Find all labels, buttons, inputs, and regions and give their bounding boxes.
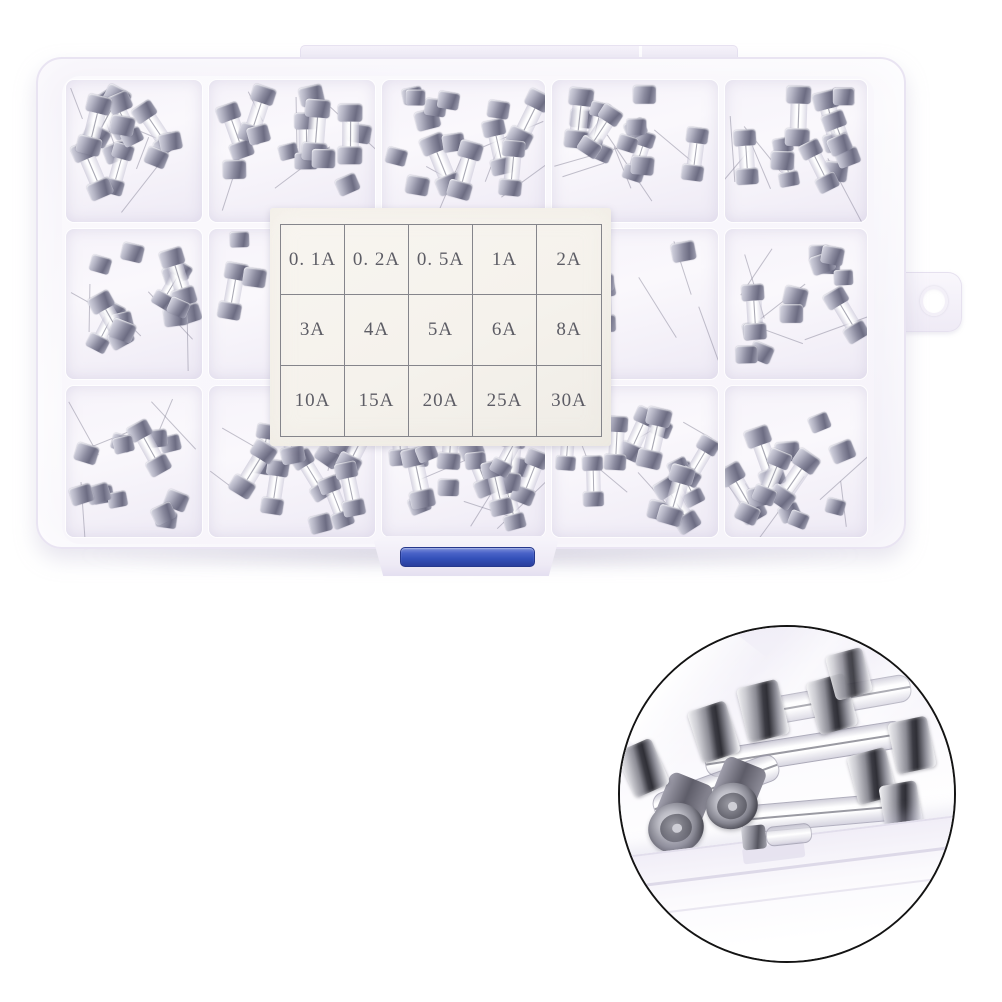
fuse-cap xyxy=(735,345,757,363)
fuse-wire xyxy=(524,108,536,130)
fuse-wire xyxy=(91,113,98,137)
glass-fuse xyxy=(498,139,526,196)
fuse-lead-wire xyxy=(638,277,676,338)
fuse-cap xyxy=(242,266,267,288)
amperage-label-card: 0. 1A0. 2A0. 5A1A2A3A4A5A6A8A10A15A20A25… xyxy=(270,208,611,446)
fuse-cap xyxy=(741,283,765,301)
fuse-wire xyxy=(814,156,825,176)
fuse-wire xyxy=(787,469,802,490)
fuse-cap xyxy=(308,512,334,535)
fuse-glass xyxy=(266,475,284,499)
fuse-cap xyxy=(626,118,646,135)
fuse-cap xyxy=(385,146,409,167)
fuse-wire xyxy=(254,103,262,126)
fuse-glass xyxy=(503,156,520,180)
fuse-wire xyxy=(615,432,617,454)
label-cell: 30A xyxy=(537,366,601,436)
fuse-glass xyxy=(737,146,754,169)
label-grid: 0. 1A0. 2A0. 5A1A2A3A4A5A6A8A10A15A20A25… xyxy=(280,224,602,437)
fuse-wire xyxy=(247,459,261,480)
fuse-wire xyxy=(511,156,514,179)
fuse-cap xyxy=(780,304,803,323)
fuse-wire xyxy=(494,477,500,499)
label-cell: 5A xyxy=(409,295,473,365)
fuse-cap xyxy=(626,118,646,135)
fuse-glass xyxy=(487,476,507,501)
fuse-cap xyxy=(120,242,145,264)
label-cell: 0. 1A xyxy=(281,225,345,295)
fuse-cap xyxy=(405,90,425,106)
label-cell: 0. 5A xyxy=(409,225,473,295)
fuse-glass xyxy=(340,477,359,502)
fuse-cap xyxy=(630,155,655,176)
fuse-storage-box: 0. 1A0. 2A0. 5A1A2A3A4A5A6A8A10A15A20A25… xyxy=(36,57,906,549)
fuse-cap xyxy=(681,164,705,182)
compartment xyxy=(382,80,545,222)
compartment xyxy=(66,80,202,222)
fuse-cap xyxy=(487,99,511,120)
fuse-cap xyxy=(771,150,795,170)
label-cell: 0. 2A xyxy=(345,225,409,295)
label-cell: 25A xyxy=(473,366,537,436)
fuse-cap xyxy=(405,90,425,106)
glass-fuse xyxy=(741,283,767,340)
fuse-cap xyxy=(498,178,522,197)
compartment xyxy=(66,229,202,379)
fuse-cap xyxy=(223,160,247,179)
fuse-wire xyxy=(415,466,421,490)
fuse-cap xyxy=(308,512,334,535)
product-photo: 0. 1A0. 2A0. 5A1A2A3A4A5A6A8A10A15A20A25… xyxy=(0,0,1002,1002)
compartment xyxy=(725,386,867,537)
fuse-cap xyxy=(807,411,832,434)
fuse-cap xyxy=(304,98,330,118)
fuse-cap xyxy=(89,254,113,275)
fuse-glass xyxy=(789,103,807,128)
fuse-cap xyxy=(807,411,832,434)
fuse-wire xyxy=(593,122,606,141)
glass-fuse xyxy=(785,85,812,146)
fuse-cap xyxy=(828,438,857,465)
fuse-cap xyxy=(780,304,803,323)
fuse-wire xyxy=(315,118,318,143)
fuse-cap xyxy=(556,455,577,471)
fuse-glass xyxy=(83,111,105,139)
fuse-cap xyxy=(833,88,854,105)
compartment xyxy=(209,80,375,222)
fuse-glass xyxy=(167,263,190,290)
fuse-cap xyxy=(230,231,250,247)
fuse-cap xyxy=(820,244,845,266)
glass-fuse xyxy=(821,285,867,345)
fuse-wire xyxy=(753,300,755,323)
fuse-lead-wire xyxy=(562,163,604,177)
fuse-wire xyxy=(840,304,853,324)
fuse-cap xyxy=(670,240,697,263)
glass-fuse xyxy=(582,456,604,507)
label-cell: 2A xyxy=(537,225,601,295)
label-cell: 10A xyxy=(281,366,345,436)
fuse-wire xyxy=(578,105,582,130)
fuse-cap xyxy=(502,139,526,158)
glass-fuse xyxy=(681,126,709,182)
fuse-wire xyxy=(526,467,535,488)
glass-fuse xyxy=(733,129,759,185)
fuse-wire xyxy=(651,426,658,450)
fuse-cap xyxy=(487,99,511,120)
fuse-cap xyxy=(334,172,361,197)
fuse-cap xyxy=(833,88,854,105)
fuse-glass xyxy=(306,117,325,143)
fuse-wire xyxy=(116,159,123,180)
fuse-wire xyxy=(592,471,594,492)
fuse-glass xyxy=(342,122,359,147)
fuse-cap xyxy=(583,492,604,508)
fuse-cap xyxy=(223,160,247,179)
fuse-cap xyxy=(735,345,757,363)
fuse-wire xyxy=(87,158,97,180)
label-cell: 4A xyxy=(345,295,409,365)
compartment xyxy=(552,80,718,222)
label-cell: 3A xyxy=(281,295,345,365)
compartment xyxy=(725,80,867,222)
fuse-lead-wire xyxy=(71,87,84,118)
fuse-cap xyxy=(786,85,811,104)
fuse-cap xyxy=(743,322,767,340)
fuse-cap xyxy=(828,438,857,465)
fuse-cap xyxy=(246,123,272,146)
fuse-wire xyxy=(143,437,155,458)
fuse-cap xyxy=(242,266,267,288)
fuse-cap xyxy=(405,174,431,196)
fuse-cap xyxy=(338,147,363,165)
fuse-cap xyxy=(603,453,626,470)
inset-fuse-cap xyxy=(741,824,767,850)
fuse-glass xyxy=(745,300,762,324)
fuse-element-wire xyxy=(741,805,901,821)
fuse-glass xyxy=(407,465,429,493)
fuse-glass xyxy=(686,142,703,165)
fuse-glass xyxy=(454,156,476,183)
fuse-cap xyxy=(112,434,135,455)
fuse-cap xyxy=(311,148,335,167)
fuse-wire xyxy=(745,146,747,168)
box-edge-groove xyxy=(618,868,956,924)
label-cell: 20A xyxy=(409,366,473,436)
fuse-cap xyxy=(436,90,460,111)
fuse-wire xyxy=(436,152,446,175)
fuse-cap xyxy=(735,168,758,186)
fuse-cap xyxy=(437,479,458,496)
fuse-cap xyxy=(217,300,243,321)
fuse-wire xyxy=(274,476,278,498)
fuse-cap xyxy=(158,130,183,152)
fuse-cap xyxy=(385,146,409,167)
label-cell: 15A xyxy=(345,366,409,436)
fuse-cap xyxy=(670,240,697,263)
fuse-glass xyxy=(664,481,687,509)
fuse-wire xyxy=(231,280,236,303)
fuse-cap xyxy=(437,479,458,496)
compartment xyxy=(725,229,867,379)
fuse-glass xyxy=(109,157,129,181)
fuse-cap xyxy=(437,452,461,470)
fuse-cap xyxy=(834,269,854,285)
fuse-wire xyxy=(462,158,469,181)
fuse-wire xyxy=(672,483,680,507)
fuse-cap xyxy=(633,85,656,104)
fuse-cap xyxy=(834,269,854,285)
fuse-cap xyxy=(158,130,183,152)
fuse-cap xyxy=(112,434,135,455)
label-cell: 6A xyxy=(473,295,537,365)
fuse-cap xyxy=(582,456,603,472)
fuse-glass xyxy=(585,471,600,492)
fuse-cap xyxy=(338,104,363,122)
fuse-wire xyxy=(174,265,182,288)
fuse-wire xyxy=(693,452,705,471)
glass-fuse xyxy=(338,104,363,165)
fuse-cap xyxy=(771,150,795,170)
fuse-wire xyxy=(348,478,353,500)
label-cell: 8A xyxy=(537,295,601,365)
fuse-cap xyxy=(787,509,810,530)
fuse-wire xyxy=(693,143,697,165)
fuse-cap xyxy=(246,123,272,146)
fuse-cap xyxy=(311,148,335,167)
compartment xyxy=(66,386,202,537)
fuse-cap xyxy=(230,231,250,247)
fuse-cap xyxy=(405,174,431,196)
latch-blue-bar xyxy=(400,547,535,567)
fuse-wire xyxy=(496,136,502,158)
fuse-cap xyxy=(120,242,145,264)
fuse-cap xyxy=(787,509,810,530)
fuse-wire xyxy=(798,104,800,129)
fuse-cap xyxy=(436,90,460,111)
fuse-wire xyxy=(768,467,778,488)
fuse-cap xyxy=(630,155,655,176)
fuse-cap xyxy=(820,244,845,266)
label-cell: 1A xyxy=(473,225,537,295)
fuse-cap xyxy=(633,85,656,104)
hanger-hole xyxy=(920,286,948,316)
fuse-cap xyxy=(733,129,756,147)
fuse-cap xyxy=(89,254,113,275)
fuse-lead-wire xyxy=(698,307,718,361)
inset-glass-fuse-tube xyxy=(765,822,813,847)
fuse-glass xyxy=(643,424,665,452)
fuse-glass xyxy=(224,278,244,303)
fuse-wire xyxy=(350,122,351,147)
fuse-cap xyxy=(260,496,284,515)
fuse-cap xyxy=(334,172,361,197)
fuse-glass xyxy=(79,155,103,183)
inset-magnifier-circle xyxy=(618,625,956,963)
